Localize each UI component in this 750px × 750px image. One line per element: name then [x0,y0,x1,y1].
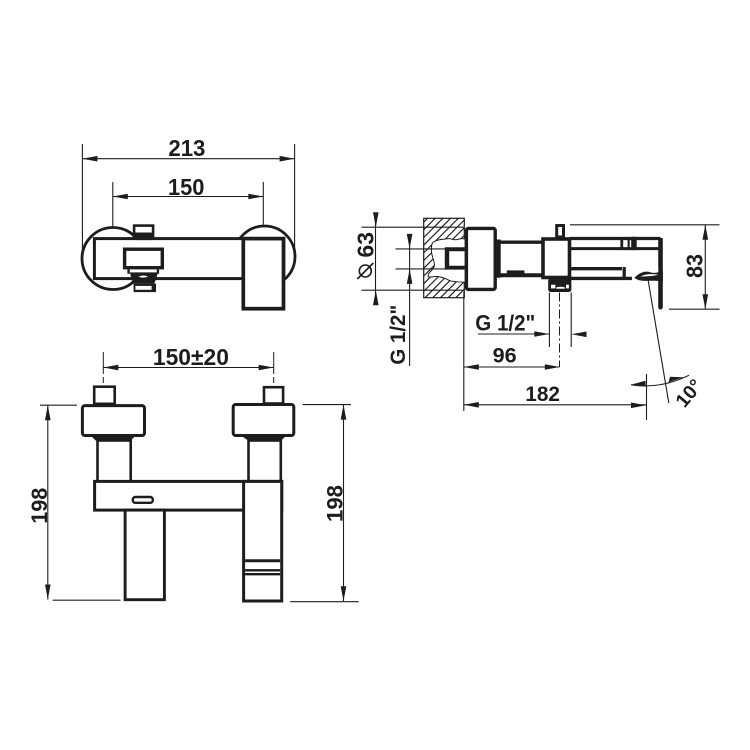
svg-text:G 1/2": G 1/2" [386,305,410,365]
svg-text:150±20: 150±20 [153,344,229,370]
svg-text:213: 213 [168,135,205,161]
svg-text:198: 198 [323,485,348,522]
svg-text:96: 96 [493,343,517,367]
svg-text:198: 198 [27,488,52,524]
svg-text:83: 83 [682,254,708,278]
svg-text:150: 150 [168,174,205,200]
svg-text:182: 182 [525,382,560,406]
svg-text:63: 63 [353,232,379,258]
svg-text:G 1/2": G 1/2" [475,311,535,336]
